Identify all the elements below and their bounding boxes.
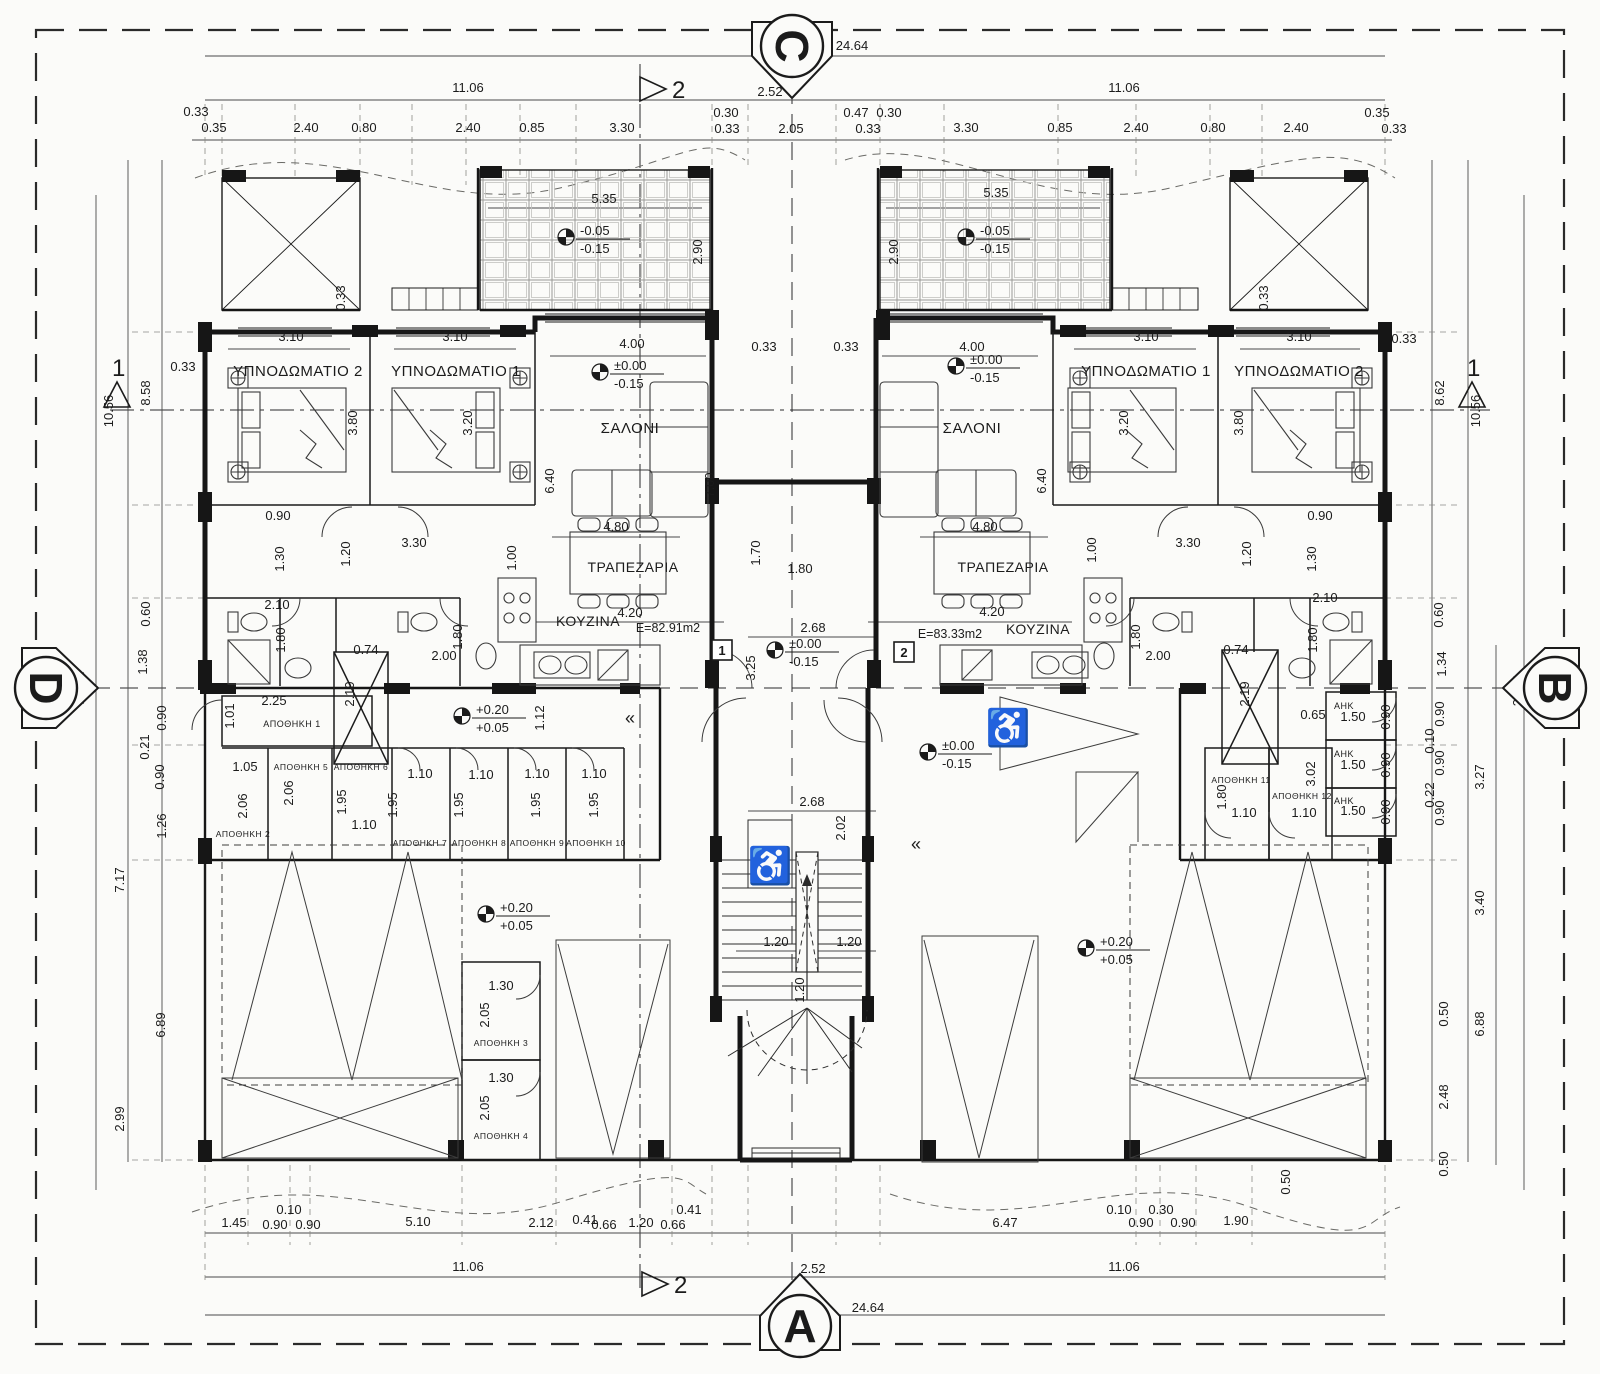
level-value: -0.15 [980,241,1010,256]
dim-label: 1.30 [272,546,287,571]
dim-label: 11.06 [1108,80,1140,95]
level-value: +0.20 [476,702,509,717]
dim-label: 1.20 [792,977,807,1002]
dim-label: 0.50 [1278,1169,1293,1194]
dim-label: 1.26 [154,813,169,838]
floor-plan-svg: 24.642.5211.0611.060.330.352.400.802.400… [0,0,1600,1374]
level-value: +0.05 [500,918,533,933]
room-label: ΣΑΛΟΝΙ [943,420,1002,437]
dim-label: 5.35 [983,185,1008,200]
dim-label: 1.38 [135,649,150,674]
dim-label: 2.68 [800,620,825,635]
room-label: ΤΡΑΠΕΖΑΡΙΑ [957,559,1048,575]
walls-thin [205,332,1396,1160]
dim-label: 0.66 [660,1217,685,1232]
level-marker: ±0.00-0.15 [948,352,1020,385]
dim-label: 0.90 [295,1217,320,1232]
dim-label: 0.30 [713,105,738,120]
dim-label: 0.33 [855,121,880,136]
dim-label: 2.05 [778,121,803,136]
dim-label: 2.40 [1283,120,1308,135]
room-label: ΥΠΝΟΔΩΜΑΤΙΟ 2 [233,363,363,380]
dim-label: 0.74 [1223,642,1248,657]
dim-label: 11.06 [452,1259,484,1274]
level-value: ±0.00 [942,738,974,753]
dim-label: 2.68 [799,794,824,809]
wheelchair-icon: ♿ [986,707,1031,748]
level-value: +0.05 [1100,952,1133,967]
dim-label: 1.50 [1340,757,1365,772]
dim-label: 1.10 [351,817,376,832]
dim-label: 1.30 [488,1070,513,1085]
dim-label: 0.90 [154,705,169,730]
dim-label: 0.90 [1432,750,1447,775]
room-label: ΑΠΟΘΗΚΗ 4 [474,1131,529,1141]
level-marker: +0.20+0.05 [454,702,526,735]
dim-label: 1.80 [1128,624,1143,649]
dim-label: 3.10 [278,329,303,344]
level-value: ±0.00 [614,358,646,373]
dim-label: 7.00 [702,472,717,497]
dim-label: 2.52 [757,84,782,99]
dim-label: 0.65 [1300,707,1325,722]
dim-label: 3.80 [1231,410,1246,435]
dim-label: 3.40 [1472,890,1487,915]
dim-label: 3.10 [1133,329,1158,344]
dim-label: 2.00 [1145,648,1170,663]
dim-label: 0.90 [262,1217,287,1232]
dim-label: 1.20 [628,1215,653,1230]
dim-label: 24.64 [852,1300,885,1315]
dim-label: 1.80 [1214,784,1229,809]
area-label: E=83.33m2 [918,627,982,641]
walls-thick [205,318,1385,1160]
symbol-icons: ♿♿«« [625,707,1030,886]
dim-label: 0.90 [1378,799,1393,824]
dim-label: 0.35 [1364,105,1389,120]
dim-label: 0.90 [1170,1215,1195,1230]
room-label: ΑΠΟΘΗΚΗ 2 [216,829,271,839]
dim-label: 0.90 [1128,1215,1153,1230]
bed [1252,388,1360,472]
dim-label: 1.45 [221,1215,246,1230]
dim-label: 0.35 [201,120,226,135]
dim-label: 0.90 [265,508,290,523]
dim-label: 2.10 [1312,590,1337,605]
dim-label: 3.10 [442,329,467,344]
dim-label: 1.30 [488,978,513,993]
dim-label: 0.47 [843,105,868,120]
dim-label: 3.30 [953,120,978,135]
dim-label: 0.33 [1391,331,1416,346]
dim-label: 1.20 [763,934,788,949]
dim-label: 5.35 [591,191,616,206]
dim-label: 2.19 [1237,681,1252,706]
dim-label: 1.10 [468,767,493,782]
verandas [222,170,1368,310]
room-label: ΑΠΟΘΗΚΗ 6 [334,762,389,772]
dim-label: 1.50 [1340,709,1365,724]
room-label: ΑΠΟΘΗΚΗ 10 [566,838,626,848]
level-value: -0.05 [580,223,610,238]
apartment-number: 2 [900,645,907,660]
dim-label: 1.70 [748,540,763,565]
dim-label: 1.10 [1231,805,1256,820]
dim-label: 0.33 [333,285,348,310]
dim-label: 6.40 [1034,468,1049,493]
level-value: -0.15 [614,376,644,391]
dim-label: 1.30 [1304,546,1319,571]
dim-label: 2.12 [528,1215,553,1230]
dim-label: 0.90 [1432,701,1447,726]
cut-number: 2 [672,77,685,104]
dim-label: 3.30 [401,535,426,550]
level-value: -0.15 [789,654,819,669]
dim-label: 2.10 [264,597,289,612]
dim-label: 0.50 [1436,1001,1451,1026]
dim-label: 1.20 [1239,541,1254,566]
dim-label: 0.21 [137,734,152,759]
dim-label: 0.80 [351,120,376,135]
dim-label: 2.40 [455,120,480,135]
floor-plan-sheet: 24.642.5211.0611.060.330.352.400.802.400… [0,0,1600,1374]
dim-label: 1.80 [273,627,288,652]
dim-label: 1.95 [528,792,543,817]
room-label: ΑΠΟΘΗΚΗ 7 [393,838,448,848]
cut-number: 1 [112,355,125,382]
dim-label: 1.90 [1223,1213,1248,1228]
room-label: ΥΠΝΟΔΩΜΑΤΙΟ 2 [1234,363,1364,380]
room-label: ΑΠΟΘΗΚΗ 1 [263,719,321,729]
dim-label: 1.34 [1434,651,1449,676]
level-value: -0.15 [942,756,972,771]
dim-label: 0.66 [591,1217,616,1232]
dim-label: 0.33 [1256,285,1271,310]
dim-label: 2.02 [833,815,848,840]
level-value: +0.20 [500,900,533,915]
dim-label: 4.80 [603,519,628,534]
level-marker: ±0.00-0.15 [592,358,664,391]
dim-label: 1.95 [451,792,466,817]
area-label: E=82.91m2 [636,621,700,635]
dim-label: 2.99 [112,1106,127,1131]
apartment-tag: 2 [894,642,914,662]
dim-label: 3.25 [743,655,758,680]
dim-label: 0.33 [751,339,776,354]
dim-label: 24.64 [836,38,869,53]
dim-label: 3.10 [1286,329,1311,344]
level-marker: +0.20+0.05 [1078,934,1150,967]
level-value: -0.15 [580,241,610,256]
room-label: ΑΠΟΘΗΚΗ 11 [1211,775,1270,785]
dim-label: 2.90 [690,239,705,264]
level-value: ±0.00 [970,352,1002,367]
level-value: ±0.00 [789,636,821,651]
dim-label: 6.40 [542,468,557,493]
level-marker: ±0.00-0.15 [767,636,839,669]
dim-label: 1.01 [222,703,237,728]
level-value: +0.20 [1100,934,1133,949]
dim-label: 6.89 [153,1012,168,1037]
dim-label: 6.88 [1472,1011,1487,1036]
dim-label: 1.12 [532,705,547,730]
dim-label: 3.27 [1472,764,1487,789]
dim-label: 11.06 [452,80,484,95]
dim-label: 0.33 [183,104,208,119]
dim-label: 6.47 [992,1215,1017,1230]
dim-label: 3.30 [609,120,634,135]
dim-label: 7.17 [112,867,127,892]
room-label: ΑΗΚ [1334,796,1354,806]
level-marker: ±0.00-0.15 [920,738,992,771]
room-label: ΥΠΝΟΔΩΜΑΤΙΟ 1 [1081,363,1211,380]
dim-label: 3.20 [1116,410,1131,435]
level-marker: +0.20+0.05 [478,900,550,933]
dim-label: 1.20 [836,934,861,949]
dim-label: 1.10 [581,766,606,781]
dim-label: 4.20 [617,605,642,620]
dim-label: 11.06 [1108,1259,1140,1274]
dim-label: 0.85 [519,120,544,135]
section-letter: C [766,29,818,62]
level-value: -0.15 [970,370,1000,385]
dim-label: 2.40 [293,120,318,135]
dim-label: 1.10 [524,766,549,781]
dim-label: 2.90 [886,239,901,264]
dim-label: 0.90 [1432,800,1447,825]
bed [238,388,346,472]
cut-marker: 2 [642,1272,687,1299]
dim-label: 3.80 [345,410,360,435]
dim-label: 3.02 [1303,761,1318,786]
dim-label: 0.90 [152,764,167,789]
section-letter: A [783,1300,816,1352]
room-label: ΑΗΚ [1334,749,1354,759]
dim-label: 4.80 [972,519,997,534]
extension-lines [132,104,1462,1280]
section-letter: B [1529,671,1581,704]
dim-label: 2.06 [235,793,250,818]
section-marker-a: A [760,1274,840,1357]
room-label: ΑΠΟΘΗΚΗ 8 [452,838,507,848]
dim-label: 1.20 [338,541,353,566]
dim-label: 0.80 [1200,120,1225,135]
section-marker-b: B [1503,648,1586,728]
dim-label: 1.10 [407,766,432,781]
direction-chevron: « [911,834,921,854]
apartment-number: 1 [718,643,725,658]
dim-label: 0.10 [1422,728,1437,753]
dim-label: 2.19 [342,681,357,706]
sofa [880,382,1016,517]
dim-label: 1.95 [586,792,601,817]
dim-label: 2.25 [261,693,286,708]
section-marker-d: D [15,648,98,728]
dim-label: 0.60 [138,601,153,626]
dim-label: 0.33 [170,359,195,374]
dim-label: 5.10 [405,1214,430,1229]
dim-label: 1.00 [1084,537,1099,562]
dim-label: 0.33 [1381,121,1406,136]
apartment-tag: 1 [712,640,732,660]
dim-label: 8.58 [138,380,153,405]
dim-label: 4.00 [619,336,644,351]
room-label: ΤΡΑΠΕΖΑΡΙΑ [587,559,678,575]
room-label: ΥΠΝΟΔΩΜΑΤΙΟ 1 [391,363,521,380]
dim-label: 1.80 [1305,627,1320,652]
dim-label: 2.05 [477,1002,492,1027]
dim-label: 0.10 [276,1202,301,1217]
room-label: ΚΟΥΖΙΝΑ [556,613,620,629]
cut-number: 1 [1467,355,1480,382]
dim-label: 3.30 [1175,535,1200,550]
bed [392,388,500,472]
toilet [228,612,1362,632]
dim-label: 3.20 [460,410,475,435]
room-label: ΑΠΟΘΗΚΗ 9 [510,838,565,848]
dim-label: 0.60 [1431,602,1446,627]
dim-label: 8.62 [1432,380,1447,405]
room-label: ΑΠΟΘΗΚΗ 5 [274,762,329,772]
dim-label: 1.05 [232,759,257,774]
dim-label: 4.20 [979,604,1004,619]
dim-label: 1.10 [1291,805,1316,820]
dim-label: 1.95 [334,789,349,814]
direction-chevron: « [625,708,635,728]
cut-number: 2 [674,1272,687,1299]
dim-label: 2.48 [1436,1084,1451,1109]
room-label: ΚΟΥΖΙΝΑ [1006,621,1070,637]
dim-label: 1.80 [450,624,465,649]
wheelchair-icon: ♿ [748,845,793,886]
nightstand [228,368,1372,482]
level-value: -0.05 [980,223,1010,238]
dim-label: 0.90 [1378,752,1393,777]
dim-label: 0.30 [876,105,901,120]
dim-label: 0.33 [833,339,858,354]
dim-label: 2.06 [281,780,296,805]
dim-label: 0.90 [1307,508,1332,523]
dim-label: 0.41 [676,1202,701,1217]
level-value: +0.05 [476,720,509,735]
dim-label: 0.90 [1378,704,1393,729]
dim-label: 2.40 [1123,120,1148,135]
dim-label: 1.80 [787,561,812,576]
dim-label: 2.05 [477,1095,492,1120]
dim-label: 2.52 [800,1261,825,1276]
section-letter: D [20,671,72,704]
dim-label: 0.85 [1047,120,1072,135]
dim-label: 0.50 [1436,1151,1451,1176]
room-label: ΣΑΛΟΝΙ [601,420,660,437]
room-label: ΑΠΟΘΗΚΗ 12 [1272,791,1332,801]
room-label: ΑΠΟΘΗΚΗ 3 [474,1038,529,1048]
dim-label: 1.00 [504,545,519,570]
dim-label: 1.95 [385,792,400,817]
room-label: ΑΗΚ [1334,701,1354,711]
dim-label: 0.74 [353,642,378,657]
dim-label: 0.33 [714,121,739,136]
cut-marker: 1 [104,355,130,407]
